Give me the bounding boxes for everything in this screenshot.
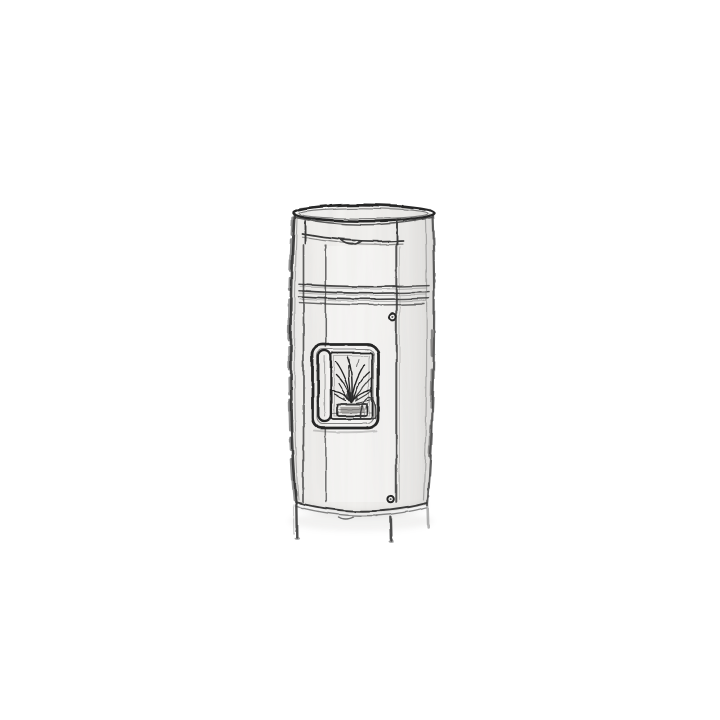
leg-rear-right <box>428 505 429 528</box>
stove-illustration <box>0 0 720 720</box>
door-screw-bottom <box>387 496 393 502</box>
leg-front-left <box>296 504 297 538</box>
stove-sketch-svg <box>0 0 720 720</box>
leg-front-right <box>390 517 391 541</box>
product-image-canvas <box>0 0 720 720</box>
